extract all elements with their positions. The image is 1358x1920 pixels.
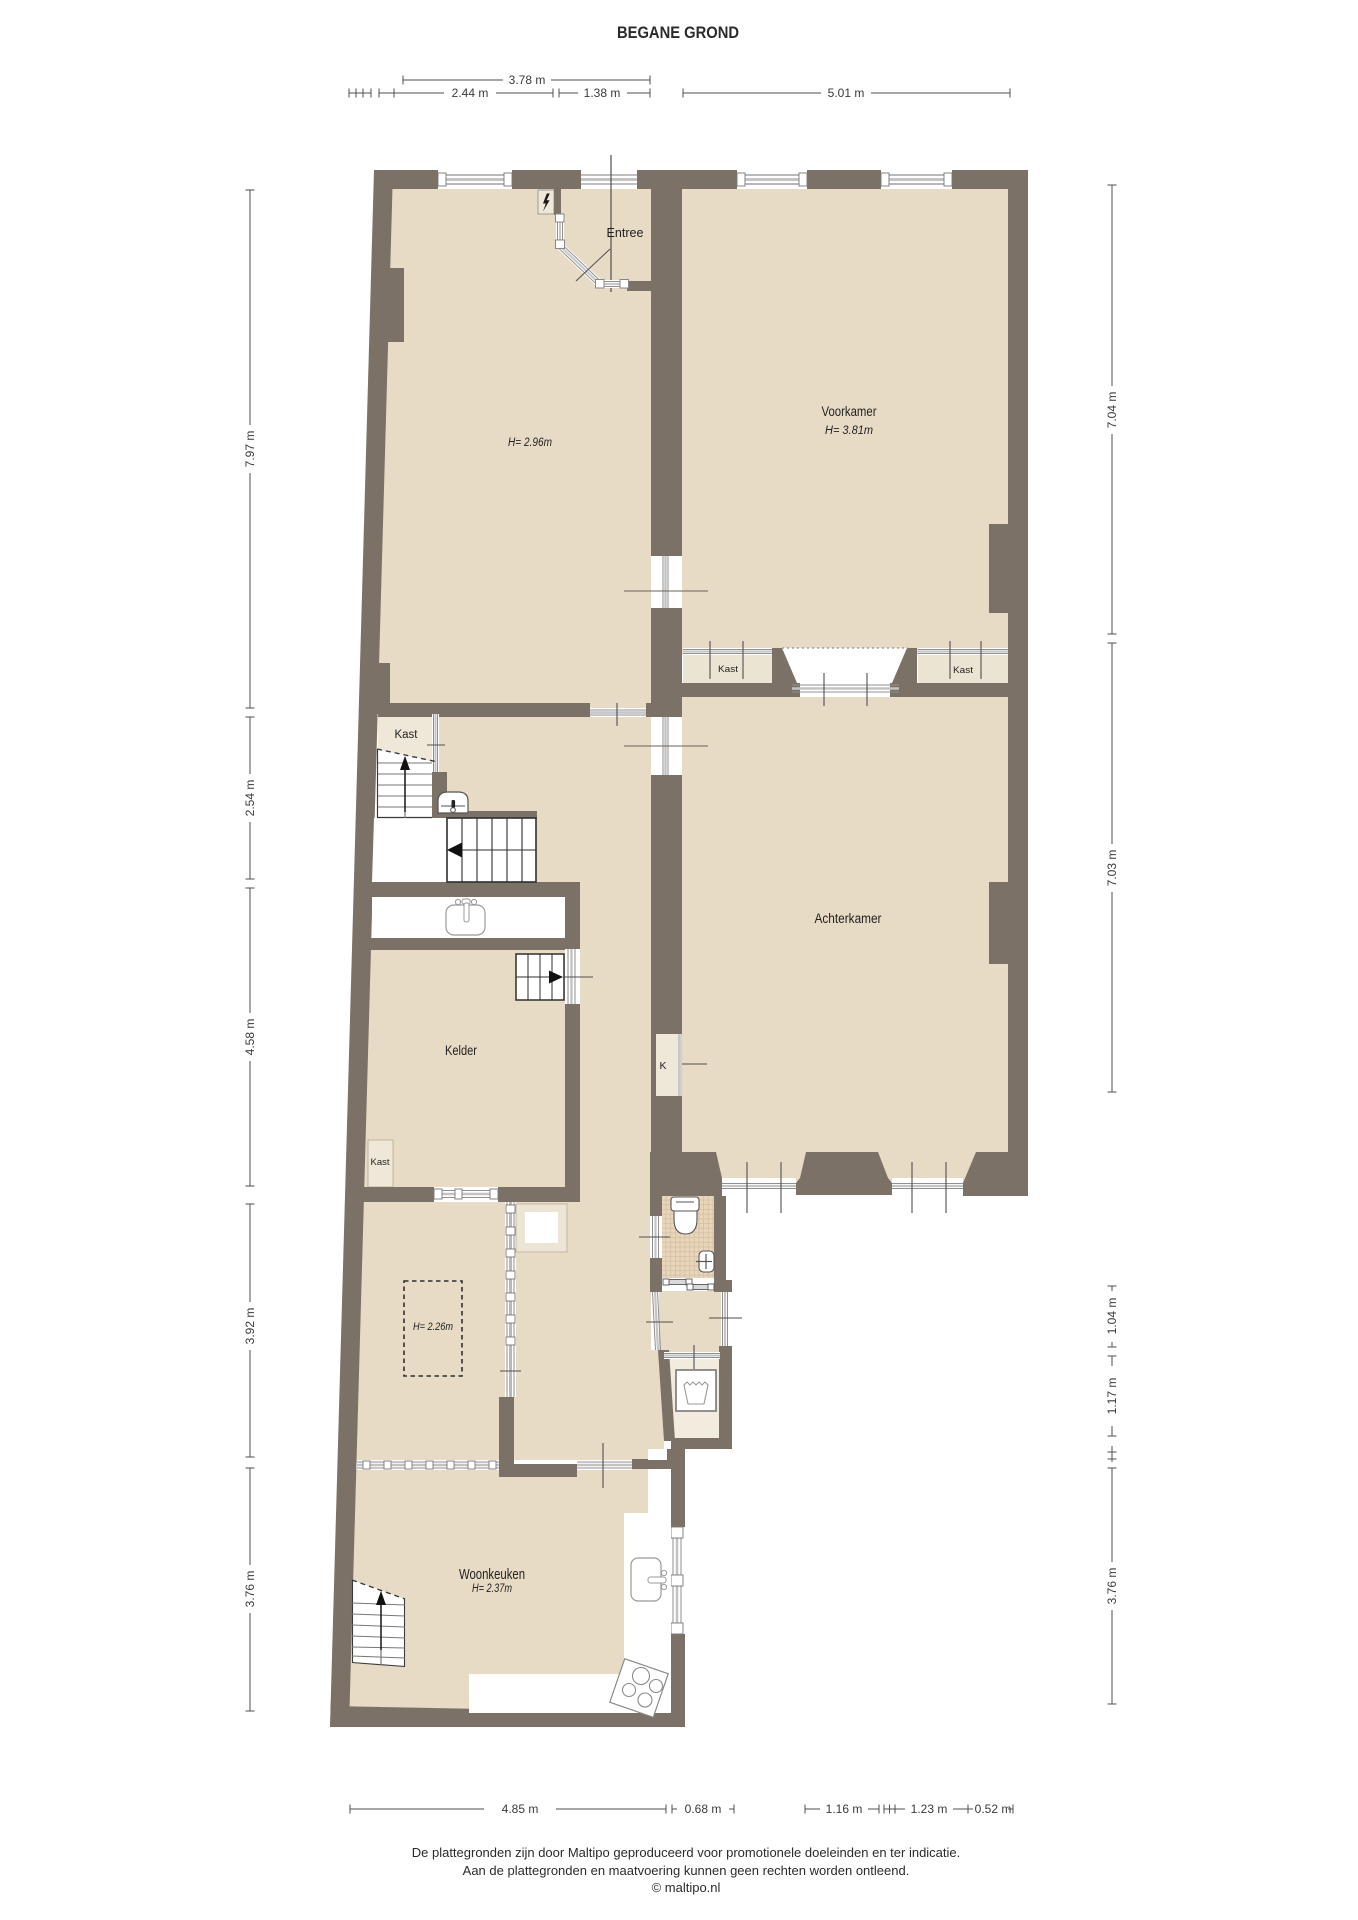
svg-text:5.01 m: 5.01 m xyxy=(828,86,865,100)
svg-text:Kelder: Kelder xyxy=(445,1043,477,1058)
svg-text:BEGANE GROND: BEGANE GROND xyxy=(617,24,739,42)
svg-text:2.44 m: 2.44 m xyxy=(452,86,489,100)
svg-text:Kast: Kast xyxy=(953,665,973,676)
svg-text:1.16 m: 1.16 m xyxy=(826,1802,863,1816)
svg-text:Entree: Entree xyxy=(607,225,644,240)
svg-text:Kast: Kast xyxy=(395,729,419,741)
svg-text:Kast: Kast xyxy=(371,1157,391,1167)
svg-text:2.54 m: 2.54 m xyxy=(243,780,257,817)
svg-text:H= 2.26m: H= 2.26m xyxy=(413,1321,453,1333)
svg-text:1.17 m: 1.17 m xyxy=(1105,1378,1119,1415)
svg-text:7.04 m: 7.04 m xyxy=(1105,392,1119,429)
svg-text:0.68 m: 0.68 m xyxy=(685,1802,722,1816)
svg-text:Woonkeuken: Woonkeuken xyxy=(459,1567,525,1583)
svg-text:4.85 m: 4.85 m xyxy=(502,1802,539,1816)
svg-text:7.97 m: 7.97 m xyxy=(243,431,257,468)
svg-text:H= 3.81m: H= 3.81m xyxy=(825,425,873,437)
svg-text:3.76 m: 3.76 m xyxy=(243,1571,257,1608)
svg-text:© maltipo.nl: © maltipo.nl xyxy=(652,1880,721,1895)
svg-text:Kast: Kast xyxy=(718,664,738,675)
svg-text:4.58 m: 4.58 m xyxy=(243,1019,257,1056)
svg-text:3.78 m: 3.78 m xyxy=(509,73,546,87)
svg-text:1.04 m: 1.04 m xyxy=(1105,1298,1119,1335)
svg-text:3.76 m: 3.76 m xyxy=(1105,1568,1119,1605)
svg-text:1.23 m: 1.23 m xyxy=(911,1802,948,1816)
svg-text:3.92 m: 3.92 m xyxy=(243,1308,257,1345)
svg-text:De plattegronden zijn door Mal: De plattegronden zijn door Maltipo gepro… xyxy=(412,1845,961,1860)
svg-text:7.03 m: 7.03 m xyxy=(1105,850,1119,887)
svg-text:Aan de plattegronden en maatvo: Aan de plattegronden en maatvoering kunn… xyxy=(463,1863,910,1878)
svg-text:1.38 m: 1.38 m xyxy=(584,86,621,100)
svg-text:H= 2.96m: H= 2.96m xyxy=(508,437,552,449)
svg-text:Voorkamer: Voorkamer xyxy=(822,404,877,419)
svg-text:0.52 m: 0.52 m xyxy=(975,1802,1012,1816)
svg-text:H= 2.37m: H= 2.37m xyxy=(472,1583,512,1595)
svg-text:Achterkamer: Achterkamer xyxy=(815,911,882,926)
svg-text:K: K xyxy=(659,1060,666,1072)
